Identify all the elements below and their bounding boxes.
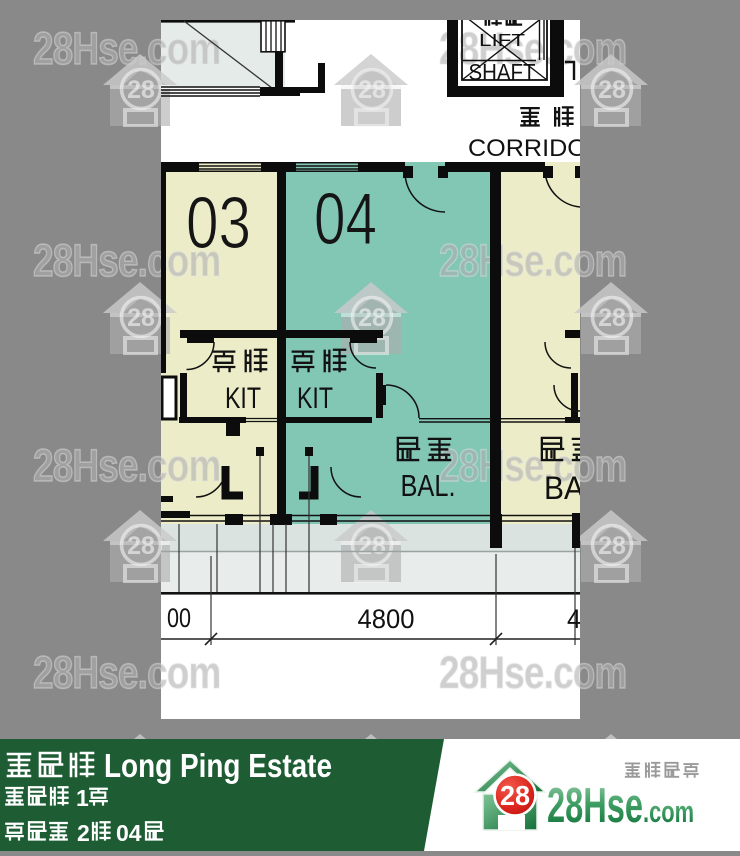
svg-text:00: 00	[167, 603, 191, 633]
svg-text:SHAFT: SHAFT	[469, 59, 536, 85]
svg-text:4800: 4800	[358, 604, 415, 634]
svg-text:04: 04	[314, 179, 377, 260]
svg-text:04: 04	[116, 820, 142, 846]
svg-text:BA: BA	[544, 470, 580, 506]
svg-text:03: 03	[186, 183, 251, 264]
svg-text:28: 28	[598, 76, 626, 104]
svg-text:2: 2	[77, 820, 90, 846]
svg-text:.com: .com	[643, 794, 694, 829]
svg-text:KIT: KIT	[225, 382, 261, 415]
svg-text:28: 28	[127, 304, 155, 332]
svg-text:BAL.: BAL.	[401, 468, 456, 503]
svg-text:LIFT: LIFT	[479, 30, 525, 50]
svg-text:Long Ping Estate: Long Ping Estate	[104, 747, 332, 784]
svg-text:28: 28	[127, 76, 155, 104]
svg-text:CORRIDOR: CORRIDOR	[468, 135, 580, 162]
svg-text:28: 28	[500, 780, 530, 811]
svg-text:28: 28	[598, 304, 626, 332]
svg-text:28: 28	[127, 532, 155, 560]
svg-text:28Hse: 28Hse	[547, 779, 643, 833]
svg-text:1: 1	[76, 785, 89, 811]
svg-text:4: 4	[567, 604, 580, 634]
svg-text:KIT: KIT	[297, 382, 333, 415]
svg-text:28: 28	[598, 532, 626, 560]
